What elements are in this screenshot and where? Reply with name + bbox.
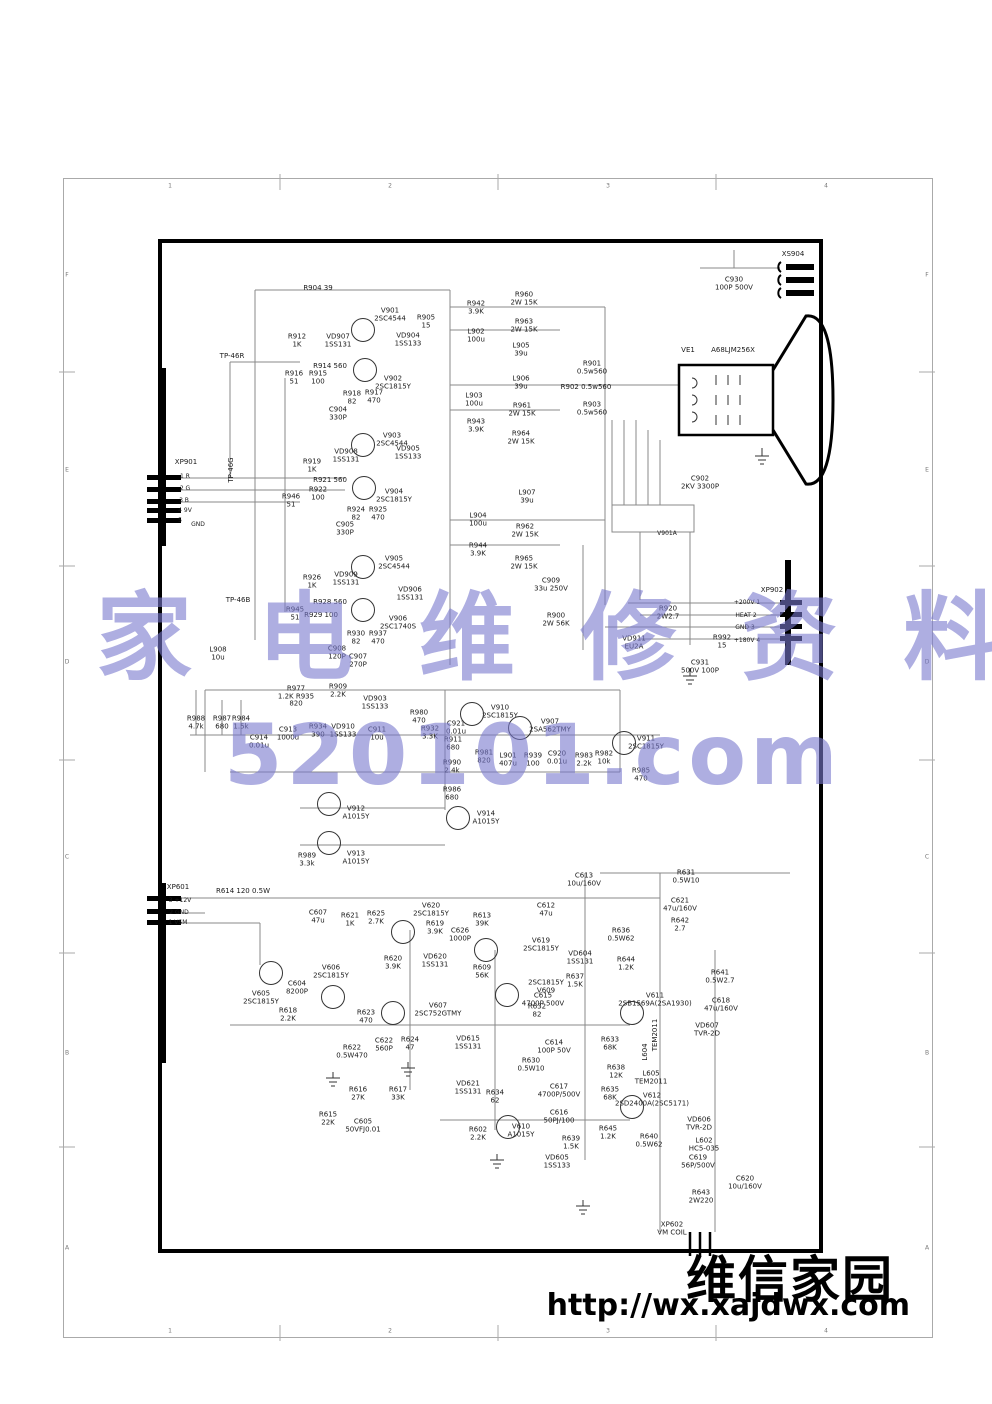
- component-label: R942 3.9K: [467, 300, 485, 315]
- component-label: R909 2.2K: [329, 683, 347, 698]
- component-label: V904 2SC1815Y: [376, 488, 412, 503]
- component-label: R917 470: [365, 389, 383, 404]
- component-label: C620 10u/160V: [728, 1175, 762, 1190]
- component-label: C913 1000u: [277, 726, 299, 741]
- component-label: C621 47u/160V: [663, 897, 697, 912]
- transistor-symbol: [351, 598, 375, 622]
- component-label: R984 1.5k: [232, 715, 250, 730]
- component-label: V913 A1015Y: [343, 850, 370, 865]
- component-label: L901 407u: [499, 752, 517, 767]
- component-label: 2 G: [180, 486, 190, 492]
- component-label: TP-46R: [220, 353, 245, 361]
- component-label: V606 2SC1815Y: [313, 964, 349, 979]
- component-label: R616 27K: [349, 1086, 367, 1101]
- component-label: R934 390: [309, 723, 327, 738]
- component-label: C605 50VFJ0.01: [345, 1118, 380, 1133]
- component-label: R943 3.9K: [467, 418, 485, 433]
- component-label: R642 2.7: [671, 917, 689, 932]
- component-label: C908 120P: [328, 645, 346, 660]
- component-label: 1 VSM: [169, 920, 188, 926]
- component-label: C618 47u/160V: [704, 997, 738, 1012]
- component-label: C612 47u: [537, 902, 555, 917]
- component-label: R961 2W 15K: [508, 402, 535, 417]
- component-label: R977 1.2K R935 820: [278, 686, 314, 709]
- component-label: +180V 4: [734, 638, 760, 644]
- component-label: R988 4.7k: [187, 715, 205, 730]
- transistor-symbol: [317, 831, 341, 855]
- component-label: L904 100u: [469, 512, 487, 527]
- component-label: TEM2011: [652, 1019, 660, 1052]
- transistor-symbol: [620, 1095, 644, 1119]
- transistor-symbol: [351, 433, 375, 457]
- transistor-symbol: [351, 318, 375, 342]
- component-label: R918 82: [343, 390, 361, 405]
- component-label: R602 2.2K: [469, 1126, 487, 1141]
- component-label: HEAT 2: [735, 613, 756, 619]
- component-label: R641 0.5W2.7: [705, 969, 734, 984]
- component-label: 1 R: [180, 474, 190, 480]
- component-label: R633 68K: [601, 1036, 619, 1051]
- component-label: C911 10u: [368, 726, 386, 741]
- component-label: R946 51: [282, 493, 300, 508]
- component-label: R916 51: [285, 370, 303, 385]
- crt-ref-label: VE1: [681, 347, 695, 355]
- component-label: VD907 1SS131: [325, 333, 352, 348]
- component-label: R921 560: [313, 477, 347, 485]
- component-label: R645 1.2K: [599, 1125, 617, 1140]
- component-label: V901A: [657, 531, 677, 537]
- component-label: R622 0.5W470: [336, 1044, 367, 1059]
- component-label: R905 15: [417, 314, 435, 329]
- component-label: R924 82: [347, 506, 365, 521]
- transistor-symbol: [496, 1115, 520, 1139]
- component-label: R900 2W 56K: [542, 612, 569, 627]
- component-label: VD904 1SS133: [395, 332, 422, 347]
- component-label: V912 A1015Y: [343, 805, 370, 820]
- component-label: R618 2.2K: [279, 1007, 297, 1022]
- component-label: C905 330P: [336, 521, 354, 536]
- component-label: R960 2W 15K: [510, 291, 537, 306]
- transistor-symbol: [612, 731, 636, 755]
- component-label: 2 GND: [169, 910, 188, 916]
- component-label: R990 2.4k: [443, 759, 461, 774]
- component-label: V905 2SC4544: [378, 555, 410, 570]
- transistor-symbol: [446, 806, 470, 830]
- transistor-symbol: [259, 961, 283, 985]
- transistor-symbol: [352, 476, 376, 500]
- component-label: R932 3.3K: [421, 725, 439, 740]
- transistor-symbol: [495, 983, 519, 1007]
- component-label: XP602 VM COIL: [657, 1221, 686, 1236]
- component-label: V619 2SC1815Y: [523, 937, 559, 952]
- component-label: R919 1K: [303, 458, 321, 473]
- component-label: R637 1.5K: [566, 973, 584, 988]
- component-label: V620 2SC1815Y: [413, 902, 449, 917]
- transistor-symbol: [381, 1001, 405, 1025]
- component-label: TP-46B: [226, 597, 251, 605]
- component-label: V906 2SC1740S: [380, 615, 416, 630]
- component-label: C909 33u 250V: [534, 577, 568, 592]
- component-label: C617 4700P/500V: [538, 1083, 581, 1098]
- component-label: R638 12K: [607, 1064, 625, 1079]
- component-label: R624 47: [401, 1036, 419, 1051]
- component-label: R613 39K: [473, 912, 491, 927]
- component-label: R617 33K: [389, 1086, 407, 1101]
- transistor-symbol: [391, 920, 415, 944]
- component-label: C914 0.01u: [249, 734, 269, 749]
- transistor-symbol: [460, 702, 484, 726]
- component-label: R965 2W 15K: [510, 555, 537, 570]
- component-label: R944 3.9K: [469, 542, 487, 557]
- component-label: R640 0.5W62: [636, 1133, 663, 1148]
- component-label: 3 B: [179, 498, 189, 504]
- transistor-symbol: [620, 1001, 644, 1025]
- component-label: VD605 1SS133: [544, 1154, 571, 1169]
- schematic-wires: [0, 0, 992, 1404]
- component-label: R982 10k: [595, 750, 613, 765]
- component-label: R986 680: [443, 786, 461, 801]
- transistor-symbol: [508, 716, 532, 740]
- component-label: V907 2SA562TMY: [529, 718, 571, 733]
- component-label: R644 1.2K: [617, 956, 635, 971]
- component-label: R939 100: [524, 752, 542, 767]
- component-label: XS904: [782, 251, 805, 259]
- component-label: 5: [178, 518, 182, 524]
- component-label: L907 39u: [518, 489, 535, 504]
- component-label: C619 56P/500V: [681, 1154, 715, 1169]
- component-label: GND 3: [735, 625, 754, 631]
- component-label: R912 1K: [288, 333, 306, 348]
- crt-symbol: [679, 316, 833, 484]
- component-label: L903 100u: [465, 392, 483, 407]
- component-label: VD620 1SS131: [422, 953, 449, 968]
- component-label: C902 2KV 3300P: [681, 475, 719, 490]
- component-label: R621 1K: [341, 912, 359, 927]
- component-label: XP902: [761, 587, 783, 595]
- component-label: L906 39u: [512, 375, 529, 390]
- component-label: R925 470: [369, 506, 387, 521]
- component-label: R980 470: [410, 709, 428, 724]
- component-label: VD604 1SS131: [567, 950, 594, 965]
- component-label: C613 10u/160V: [567, 872, 601, 887]
- transistor-symbol: [474, 938, 498, 962]
- component-label: C607 47u: [309, 909, 327, 924]
- component-label: XP901: [175, 459, 197, 467]
- component-label: R929 100: [304, 612, 338, 620]
- crt-model-label: A68LJM256X: [711, 347, 755, 355]
- component-label: R962 2W 15K: [511, 523, 538, 538]
- component-label: R915 100: [309, 370, 327, 385]
- component-label: L905 39u: [512, 342, 529, 357]
- component-label: R983 2.2k: [575, 752, 593, 767]
- component-label: V605 2SC1815Y: [243, 990, 279, 1005]
- component-label: VD607 TVR-2D: [694, 1022, 720, 1037]
- component-label: C904 330P: [329, 406, 347, 421]
- component-label: R945 51: [286, 606, 304, 621]
- component-label: VD905 1SS133: [395, 445, 422, 460]
- component-label: C931 500V 100P: [681, 659, 719, 674]
- component-label: VD903 1SS133: [362, 695, 389, 710]
- component-label: R920 2W2.7: [657, 605, 680, 620]
- component-label: 3 +12V: [169, 898, 192, 904]
- component-label: R614 120 0.5W: [216, 888, 270, 896]
- component-label: R902 0.5w560: [561, 384, 612, 392]
- component-label: R903 0.5w560: [577, 401, 607, 416]
- component-label: R636 0.5W62: [608, 927, 635, 942]
- component-label: V901 2SC4544: [374, 307, 406, 322]
- component-label: VD606 TVR-2D: [686, 1116, 712, 1131]
- transistor-symbol: [353, 358, 377, 382]
- site-url: http://wx.xajdwx.com: [547, 1288, 910, 1323]
- component-label: R922 100: [309, 486, 327, 501]
- component-label: VD910 1SS133: [330, 723, 357, 738]
- component-label: C930 100P 500V: [715, 276, 753, 291]
- component-label: +200V 1: [734, 600, 760, 606]
- component-label: R623 470: [357, 1009, 375, 1024]
- component-label: L908 10u: [209, 646, 226, 661]
- component-label: R901 0.5w560: [577, 360, 607, 375]
- component-label: C626 1000P: [449, 927, 471, 942]
- component-label: R981 820: [475, 749, 493, 764]
- component-label: V914 A1015Y: [473, 810, 500, 825]
- component-label: C616 50PJ/100: [544, 1109, 575, 1124]
- component-label: C907 270P: [349, 653, 367, 668]
- component-label: R964 2W 15K: [507, 430, 534, 445]
- component-label: 4 9V: [178, 508, 192, 514]
- component-label: R609 56K: [473, 964, 491, 979]
- component-label: GND: [191, 522, 205, 528]
- component-label: XP601: [167, 884, 189, 892]
- component-label: R639 1.5K: [562, 1135, 580, 1150]
- component-label: TP-46G: [228, 457, 236, 482]
- component-label: C622 560P: [375, 1037, 393, 1052]
- component-label: R625 2.7K: [367, 910, 385, 925]
- component-label: R985 470: [632, 767, 650, 782]
- component-label: R928 560: [313, 599, 347, 607]
- component-label: R619 3.9K: [426, 920, 444, 935]
- component-label: R620 3.9K: [384, 955, 402, 970]
- component-label: R615 22K: [319, 1111, 337, 1126]
- transistor-symbol: [317, 792, 341, 816]
- schematic-page: { "frame": { "cols": [{"l":"1","x":170},…: [0, 0, 992, 1404]
- component-label: R634 62: [486, 1089, 504, 1104]
- transistor-symbol: [321, 985, 345, 1009]
- component-label: R963 2W 15K: [510, 318, 537, 333]
- component-label: R631 0.5W10: [673, 869, 700, 884]
- component-label: R643 2W220: [689, 1189, 714, 1204]
- component-label: L605 TEM2011: [635, 1070, 668, 1085]
- transistor-symbol: [351, 555, 375, 579]
- component-label: VD615 1SS131: [455, 1035, 482, 1050]
- component-label: R911 680: [444, 736, 462, 751]
- component-label: VD621 1SS131: [455, 1080, 482, 1095]
- component-label: L604: [642, 1043, 650, 1060]
- component-label: R989 3.3k: [298, 852, 316, 867]
- component-label: R904 39: [303, 285, 332, 293]
- component-label: L902 100u: [467, 328, 485, 343]
- component-label: R926 1K: [303, 574, 321, 589]
- component-label: R937 470: [369, 630, 387, 645]
- component-label: VD911 EU2A: [622, 635, 646, 650]
- component-label: R992 15: [713, 634, 731, 649]
- component-label: R987 680: [213, 715, 231, 730]
- component-label: C615 4700P 500V: [522, 992, 564, 1007]
- component-label: C604 8200P: [286, 980, 308, 995]
- component-label: V607 2SC752GTMY: [415, 1002, 462, 1017]
- component-label: R930 82: [347, 630, 365, 645]
- component-label: R630 0.5W10: [518, 1057, 545, 1072]
- component-label: C920 0.01u: [547, 750, 567, 765]
- component-label: C614 100P 50V: [537, 1039, 571, 1054]
- component-label: L602 HC5-035: [689, 1137, 720, 1152]
- component-label: VD906 1SS131: [397, 586, 424, 601]
